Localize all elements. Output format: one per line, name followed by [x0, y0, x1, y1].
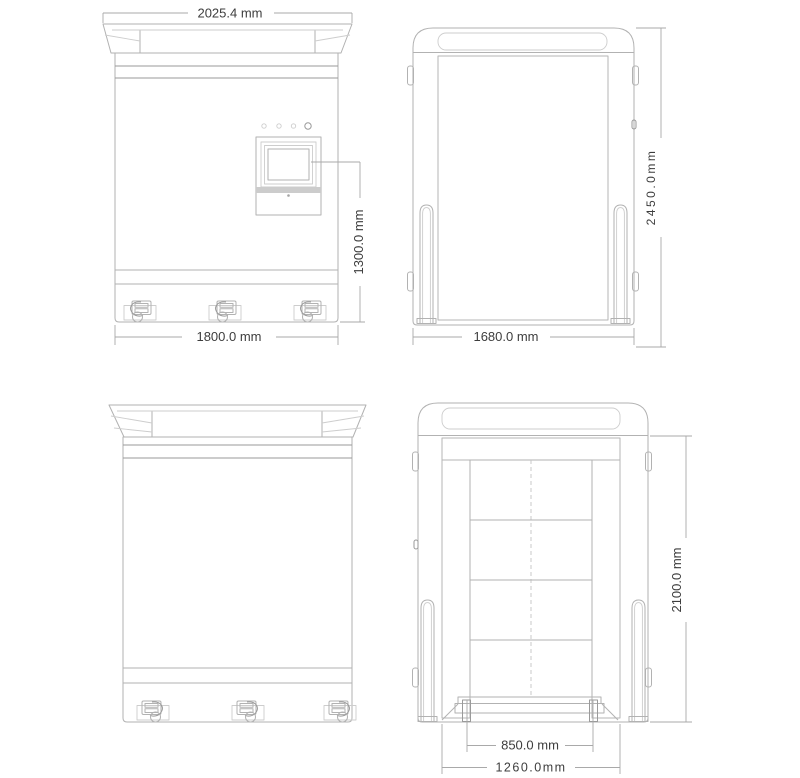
- side-hinges: [408, 66, 639, 291]
- indicator-lights: [262, 123, 311, 129]
- caster-icon: [232, 701, 264, 722]
- power-led-icon: [305, 123, 311, 129]
- dim-label-pallet-width: 850.0 mm: [501, 738, 559, 753]
- front-view: 2025.4 mm 1800.0 mm 1300.0 mm: [103, 6, 366, 346]
- dimension-base-width: 1800.0 mm: [115, 325, 338, 345]
- dim-label-shutter-width: 1680.0 mm: [473, 329, 538, 344]
- caster-icon: [209, 301, 241, 322]
- dim-label-screen-height: 1300.0 mm: [351, 209, 366, 274]
- shutter-band: [442, 438, 620, 460]
- four-view-dimension-drawing: 2025.4 mm 1800.0 mm 1300.0 mm: [0, 0, 800, 778]
- cabinet-body: [123, 437, 352, 722]
- caster-icon: [294, 301, 326, 322]
- shutter-rail-left: [442, 460, 470, 718]
- panel-band: [256, 187, 321, 193]
- handle-posts: [417, 205, 630, 324]
- dim-label-front-base-width: 1800.0 mm: [196, 329, 261, 344]
- technical-drawing: 2025.4 mm 1800.0 mm 1300.0 mm: [0, 0, 800, 778]
- dim-label-front-top-width: 2025.4 mm: [197, 6, 262, 21]
- led-icon: [262, 124, 266, 128]
- dim-label-open-height: 2100.0 mm: [669, 547, 684, 612]
- shell: [413, 28, 634, 325]
- caster-icon: [137, 701, 169, 722]
- dim-label-total-height: 2450.0mm: [644, 149, 658, 226]
- shutter-view: 1680.0 mm 2450.0mm: [408, 28, 667, 347]
- panel-button: [287, 194, 290, 197]
- lock-icon: [414, 540, 418, 549]
- roller-shutter: [438, 56, 608, 320]
- canopy: [109, 405, 366, 437]
- touchscreen: [268, 149, 309, 180]
- back-view: [109, 405, 366, 722]
- casters: [137, 701, 356, 722]
- header-lamp: [442, 408, 620, 429]
- dimension-total-height: 2450.0mm: [636, 28, 666, 347]
- dimension-open-height: 2100.0 mm: [650, 436, 692, 722]
- side-hinges: [413, 452, 652, 687]
- casters: [124, 301, 326, 322]
- dimension-pallet-width: 850.0 mm: [467, 700, 593, 753]
- dimension-top-width: 2025.4 mm: [103, 6, 352, 24]
- shell: [418, 403, 648, 722]
- interior-view: 2100.0 mm 850.0 mm 1260.0mm: [413, 403, 693, 775]
- canopy: [103, 24, 352, 53]
- caster-icon: [324, 701, 356, 722]
- caster-icon: [124, 301, 156, 322]
- dimension-shutter-width: 1680.0 mm: [413, 328, 634, 345]
- dim-label-door-width: 1260.0mm: [495, 761, 566, 775]
- shutter-rail-right: [592, 460, 620, 718]
- led-icon: [291, 124, 295, 128]
- led-icon: [277, 124, 281, 128]
- rack-grid: [470, 460, 592, 697]
- control-panel: [256, 137, 321, 215]
- header-lamp: [438, 33, 607, 50]
